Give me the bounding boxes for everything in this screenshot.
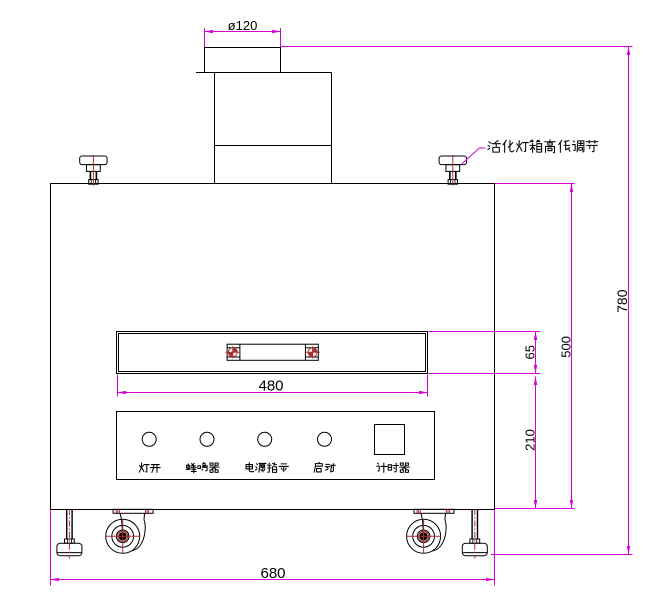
svg-text:480: 480	[258, 378, 283, 395]
svg-text:ø120: ø120	[228, 18, 258, 33]
svg-text:210: 210	[522, 429, 537, 451]
svg-text:500: 500	[558, 336, 573, 358]
svg-text:780: 780	[614, 289, 630, 313]
svg-text:65: 65	[522, 345, 537, 359]
svg-text:680: 680	[260, 565, 285, 582]
